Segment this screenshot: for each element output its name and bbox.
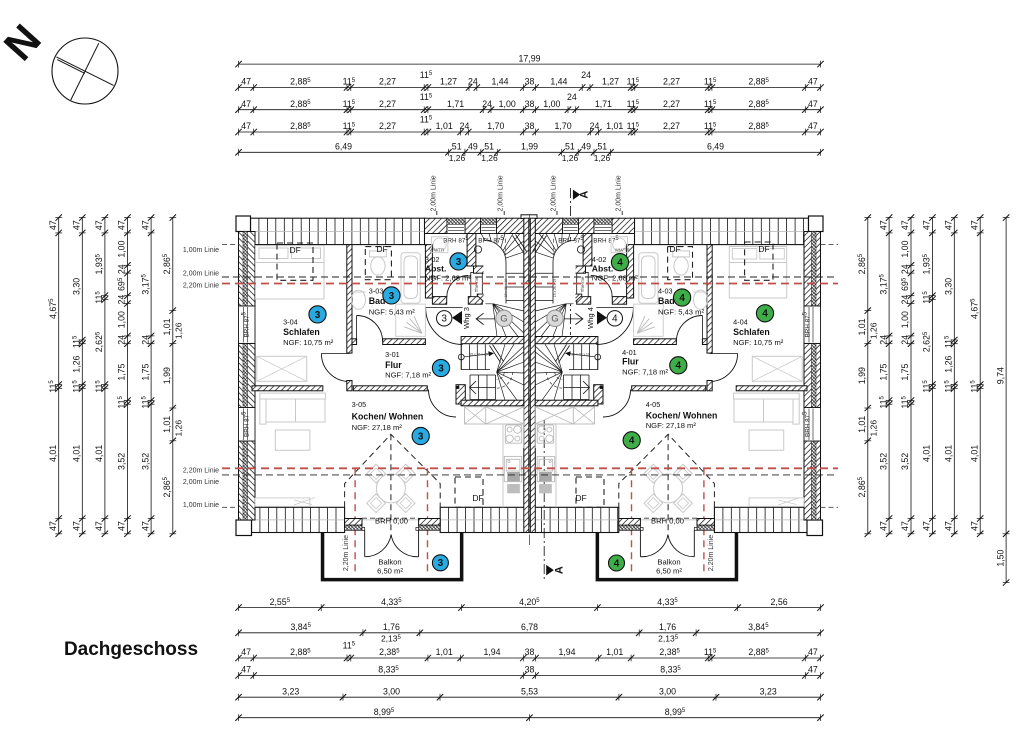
svg-text:1,27: 1,27 xyxy=(440,77,457,87)
svg-text:3: 3 xyxy=(456,257,462,268)
svg-text:NGF: 2,68 m²: NGF: 2,68 m² xyxy=(592,274,638,283)
svg-text:4-04: 4-04 xyxy=(733,318,748,327)
svg-text:1,00: 1,00 xyxy=(117,311,127,328)
svg-text:2,27: 2,27 xyxy=(379,99,396,109)
svg-text:1,26: 1,26 xyxy=(869,322,879,339)
svg-text:17,99: 17,99 xyxy=(518,53,540,63)
svg-text:1,26: 1,26 xyxy=(481,153,498,163)
svg-text:Flur: Flur xyxy=(622,357,639,367)
svg-text:2,20m Linie: 2,20m Linie xyxy=(183,283,219,290)
svg-text:1,01: 1,01 xyxy=(436,647,453,657)
svg-text:G: G xyxy=(551,314,558,325)
svg-text:2,00m Linie: 2,00m Linie xyxy=(183,271,219,278)
svg-text:WM/TR: WM/TR xyxy=(429,248,444,253)
svg-text:1,44: 1,44 xyxy=(550,77,567,87)
svg-text:G: G xyxy=(500,314,507,325)
svg-text:1,44: 1,44 xyxy=(491,77,508,87)
svg-text:BRH 0,00: BRH 0,00 xyxy=(375,517,408,526)
svg-text:NGF: 7,18 m²: NGF: 7,18 m² xyxy=(385,371,431,380)
svg-text:4,01: 4,01 xyxy=(943,445,953,462)
svg-text:24: 24 xyxy=(900,264,910,274)
svg-text:47: 47 xyxy=(943,521,953,531)
svg-text:38: 38 xyxy=(525,121,535,131)
svg-text:5,53: 5,53 xyxy=(521,686,538,696)
svg-text:6,49: 6,49 xyxy=(335,142,352,152)
svg-text:2,27: 2,27 xyxy=(379,77,396,87)
svg-text:47: 47 xyxy=(922,521,932,531)
svg-text:NGF: 5,43 m²: NGF: 5,43 m² xyxy=(658,308,704,317)
svg-text:47: 47 xyxy=(900,521,910,531)
svg-text:24: 24 xyxy=(117,335,127,345)
svg-text:Kochen/ Wohnen: Kochen/ Wohnen xyxy=(352,411,424,421)
svg-text:3,23: 3,23 xyxy=(282,686,299,696)
svg-text:24: 24 xyxy=(140,335,150,345)
svg-text:2,27: 2,27 xyxy=(663,121,680,131)
svg-text:1,26: 1,26 xyxy=(449,153,466,163)
svg-text:6,78: 6,78 xyxy=(521,622,538,632)
svg-text:Bad: Bad xyxy=(658,296,675,306)
svg-text:24: 24 xyxy=(900,335,910,345)
svg-text:4: 4 xyxy=(614,558,620,569)
svg-text:1,01: 1,01 xyxy=(162,416,172,433)
svg-text:1,71: 1,71 xyxy=(447,99,464,109)
svg-text:1,01: 1,01 xyxy=(162,318,172,335)
svg-text:2,00m Linie: 2,00m Linie xyxy=(498,175,505,211)
svg-text:NGF: 10,75 m²: NGF: 10,75 m² xyxy=(733,338,784,347)
svg-text:1,00: 1,00 xyxy=(900,311,910,328)
svg-text:24: 24 xyxy=(567,92,577,102)
svg-text:24: 24 xyxy=(468,77,478,87)
svg-text:3,30: 3,30 xyxy=(71,278,81,295)
svg-text:Schlafen: Schlafen xyxy=(283,327,320,337)
svg-text:BRH 0,00: BRH 0,00 xyxy=(651,517,684,526)
svg-text:1,00: 1,00 xyxy=(900,240,910,257)
svg-text:4,01: 4,01 xyxy=(969,445,979,462)
svg-text:2,20m Linie: 2,20m Linie xyxy=(708,535,715,571)
svg-text:47: 47 xyxy=(241,99,251,109)
svg-text:Kochen/ Wohnen: Kochen/ Wohnen xyxy=(646,410,718,420)
svg-text:DF: DF xyxy=(575,493,586,503)
svg-text:DF: DF xyxy=(376,244,387,254)
svg-text:49: 49 xyxy=(581,142,591,152)
svg-text:38: 38 xyxy=(525,77,535,87)
svg-text:47: 47 xyxy=(241,121,251,131)
svg-text:WM/TR: WM/TR xyxy=(615,248,630,253)
svg-text:3: 3 xyxy=(441,314,447,325)
svg-text:Schlafen: Schlafen xyxy=(733,327,770,337)
svg-text:4: 4 xyxy=(676,361,682,372)
svg-text:3,00: 3,00 xyxy=(383,686,400,696)
svg-text:47: 47 xyxy=(140,521,150,531)
svg-text:4: 4 xyxy=(762,309,768,320)
svg-text:38: 38 xyxy=(525,647,535,657)
svg-text:3,52: 3,52 xyxy=(117,453,127,470)
svg-text:DF: DF xyxy=(290,245,301,255)
svg-text:2,00m Linie: 2,00m Linie xyxy=(183,479,219,486)
svg-text:6,50 m²: 6,50 m² xyxy=(656,566,682,575)
svg-text:Flur: Flur xyxy=(385,360,402,370)
svg-text:47: 47 xyxy=(969,521,979,531)
svg-text:47: 47 xyxy=(878,521,888,531)
svg-text:47: 47 xyxy=(900,220,910,230)
svg-text:4,01: 4,01 xyxy=(94,445,104,462)
svg-text:1,26: 1,26 xyxy=(869,420,879,437)
svg-text:2,00m Linie: 2,00m Linie xyxy=(551,175,558,211)
svg-text:47: 47 xyxy=(71,521,81,531)
svg-text:47: 47 xyxy=(943,220,953,230)
svg-text:15 x 26 x 19: 15 x 26 x 19 xyxy=(504,279,508,298)
svg-text:51: 51 xyxy=(452,142,462,152)
svg-text:47: 47 xyxy=(241,647,251,657)
svg-text:NGF: 27,18 m²: NGF: 27,18 m² xyxy=(352,423,403,432)
svg-text:6,49: 6,49 xyxy=(707,142,724,152)
svg-text:DF: DF xyxy=(472,493,483,503)
svg-text:24: 24 xyxy=(878,335,888,345)
svg-text:15 x 26 x 19: 15 x 26 x 19 xyxy=(553,279,557,298)
svg-text:47: 47 xyxy=(71,220,81,230)
svg-text:1,00m Linie: 1,00m Linie xyxy=(183,502,219,509)
svg-text:3-05: 3-05 xyxy=(352,400,367,409)
svg-text:9,74: 9,74 xyxy=(995,367,1005,384)
svg-text:15 x 26 x 19: 15 x 26 x 19 xyxy=(469,353,488,357)
svg-text:47: 47 xyxy=(808,647,818,657)
svg-text:3: 3 xyxy=(418,431,424,442)
svg-text:3,52: 3,52 xyxy=(900,453,910,470)
svg-text:24: 24 xyxy=(590,121,600,131)
svg-text:1,75: 1,75 xyxy=(140,363,150,380)
svg-text:2,27: 2,27 xyxy=(663,77,680,87)
svg-text:47: 47 xyxy=(878,220,888,230)
svg-text:4-05: 4-05 xyxy=(646,400,661,409)
svg-text:47: 47 xyxy=(48,521,58,531)
svg-text:DF: DF xyxy=(669,244,680,254)
svg-text:4: 4 xyxy=(679,293,685,304)
svg-text:NGF: 2,68 m²: NGF: 2,68 m² xyxy=(425,274,471,283)
svg-text:1,70: 1,70 xyxy=(487,121,504,131)
svg-text:1,01: 1,01 xyxy=(606,647,623,657)
svg-text:4: 4 xyxy=(629,436,635,447)
svg-text:4: 4 xyxy=(612,314,618,325)
svg-text:24: 24 xyxy=(117,264,127,274)
svg-text:1,76: 1,76 xyxy=(659,622,676,632)
svg-text:15 x 26 x 19: 15 x 26 x 19 xyxy=(571,353,590,357)
svg-text:4-01: 4-01 xyxy=(622,348,637,357)
svg-text:3,30: 3,30 xyxy=(943,278,953,295)
svg-text:4: 4 xyxy=(617,258,623,269)
svg-text:1,50: 1,50 xyxy=(995,549,1005,566)
svg-text:1,26: 1,26 xyxy=(562,153,579,163)
svg-text:47: 47 xyxy=(241,665,251,675)
svg-text:3: 3 xyxy=(438,558,444,569)
svg-text:3,23: 3,23 xyxy=(760,686,777,696)
svg-text:1,71: 1,71 xyxy=(595,99,612,109)
svg-text:24: 24 xyxy=(581,70,591,80)
svg-text:Balkon: Balkon xyxy=(378,557,401,566)
svg-text:47: 47 xyxy=(808,77,818,87)
svg-text:Abst.: Abst. xyxy=(425,264,446,274)
svg-text:51: 51 xyxy=(565,142,575,152)
svg-text:6,50 m²: 6,50 m² xyxy=(377,566,403,575)
svg-text:24: 24 xyxy=(900,295,910,305)
svg-text:1,27: 1,27 xyxy=(602,77,619,87)
svg-text:2,27: 2,27 xyxy=(379,121,396,131)
svg-text:1,75: 1,75 xyxy=(878,363,888,380)
svg-text:4,01: 4,01 xyxy=(48,445,58,462)
svg-text:24: 24 xyxy=(482,99,492,109)
svg-text:1,99: 1,99 xyxy=(521,142,538,152)
svg-text:1,01: 1,01 xyxy=(436,121,453,131)
svg-text:4-03: 4-03 xyxy=(658,287,673,296)
svg-text:4,01: 4,01 xyxy=(922,445,932,462)
svg-text:47: 47 xyxy=(808,121,818,131)
svg-text:38: 38 xyxy=(525,665,535,675)
svg-text:47: 47 xyxy=(808,665,818,675)
svg-text:47: 47 xyxy=(117,521,127,531)
svg-text:1,00: 1,00 xyxy=(117,240,127,257)
svg-text:24: 24 xyxy=(460,121,470,131)
svg-text:47: 47 xyxy=(94,521,104,531)
svg-text:3-01: 3-01 xyxy=(385,350,400,359)
svg-text:3,52: 3,52 xyxy=(140,453,150,470)
svg-text:3-04: 3-04 xyxy=(283,318,298,327)
svg-text:DF: DF xyxy=(758,244,769,254)
svg-text:2,20m Linie: 2,20m Linie xyxy=(343,535,350,571)
svg-text:47: 47 xyxy=(48,220,58,230)
svg-text:1,94: 1,94 xyxy=(558,647,575,657)
svg-text:2,00m Linie: 2,00m Linie xyxy=(430,175,437,211)
svg-text:1,94: 1,94 xyxy=(483,647,500,657)
svg-text:2,56: 2,56 xyxy=(771,597,788,607)
svg-text:3: 3 xyxy=(315,310,321,321)
svg-text:NGF: 5,43 m²: NGF: 5,43 m² xyxy=(369,308,415,317)
svg-text:1,01: 1,01 xyxy=(606,121,623,131)
svg-text:1,26: 1,26 xyxy=(174,420,184,437)
svg-text:3,00: 3,00 xyxy=(659,686,676,696)
svg-text:1,76: 1,76 xyxy=(383,622,400,632)
svg-text:NGF: 10,75 m²: NGF: 10,75 m² xyxy=(283,338,334,347)
svg-text:47: 47 xyxy=(808,99,818,109)
svg-text:NGF: 27,18 m²: NGF: 27,18 m² xyxy=(646,421,697,430)
svg-text:1,26: 1,26 xyxy=(944,355,954,372)
svg-text:49: 49 xyxy=(468,142,478,152)
svg-text:47: 47 xyxy=(969,220,979,230)
svg-text:1,70: 1,70 xyxy=(555,121,572,131)
svg-text:38: 38 xyxy=(525,99,535,109)
svg-text:2,00m Linie: 2,00m Linie xyxy=(616,175,623,211)
svg-text:47: 47 xyxy=(140,220,150,230)
svg-text:A: A xyxy=(554,566,566,574)
svg-text:47: 47 xyxy=(922,220,932,230)
svg-text:A: A xyxy=(579,191,591,199)
svg-text:1,01: 1,01 xyxy=(857,318,867,335)
svg-text:1,99: 1,99 xyxy=(162,367,172,384)
svg-text:2,20m Linie: 2,20m Linie xyxy=(183,468,219,475)
svg-text:Whg 3: Whg 3 xyxy=(462,307,471,329)
svg-text:Whg 4: Whg 4 xyxy=(586,307,595,329)
svg-text:1,26: 1,26 xyxy=(594,153,611,163)
svg-text:47: 47 xyxy=(241,77,251,87)
svg-text:51: 51 xyxy=(484,142,494,152)
svg-text:2,27: 2,27 xyxy=(663,99,680,109)
svg-text:3: 3 xyxy=(389,291,395,302)
svg-text:24: 24 xyxy=(117,295,127,305)
svg-text:Balkon: Balkon xyxy=(657,557,680,566)
svg-text:1,26: 1,26 xyxy=(72,355,82,372)
svg-text:3: 3 xyxy=(438,363,444,374)
svg-text:1,01: 1,01 xyxy=(857,416,867,433)
svg-text:4,01: 4,01 xyxy=(71,445,81,462)
svg-text:Abst.: Abst. xyxy=(592,264,613,274)
svg-text:1,75: 1,75 xyxy=(900,363,910,380)
svg-text:47: 47 xyxy=(117,220,127,230)
svg-text:3-03: 3-03 xyxy=(369,287,384,296)
svg-text:1,99: 1,99 xyxy=(857,367,867,384)
svg-text:51: 51 xyxy=(597,142,607,152)
svg-text:3,52: 3,52 xyxy=(878,453,888,470)
svg-text:1,00: 1,00 xyxy=(499,99,516,109)
svg-text:1,00m Linie: 1,00m Linie xyxy=(183,247,219,254)
svg-text:1,26: 1,26 xyxy=(174,322,184,339)
svg-text:NGF: 7,18 m²: NGF: 7,18 m² xyxy=(622,368,668,377)
svg-text:Dachgeschoss: Dachgeschoss xyxy=(64,639,198,660)
svg-text:1,00: 1,00 xyxy=(543,99,560,109)
svg-text:47: 47 xyxy=(94,220,104,230)
svg-text:1,75: 1,75 xyxy=(117,363,127,380)
